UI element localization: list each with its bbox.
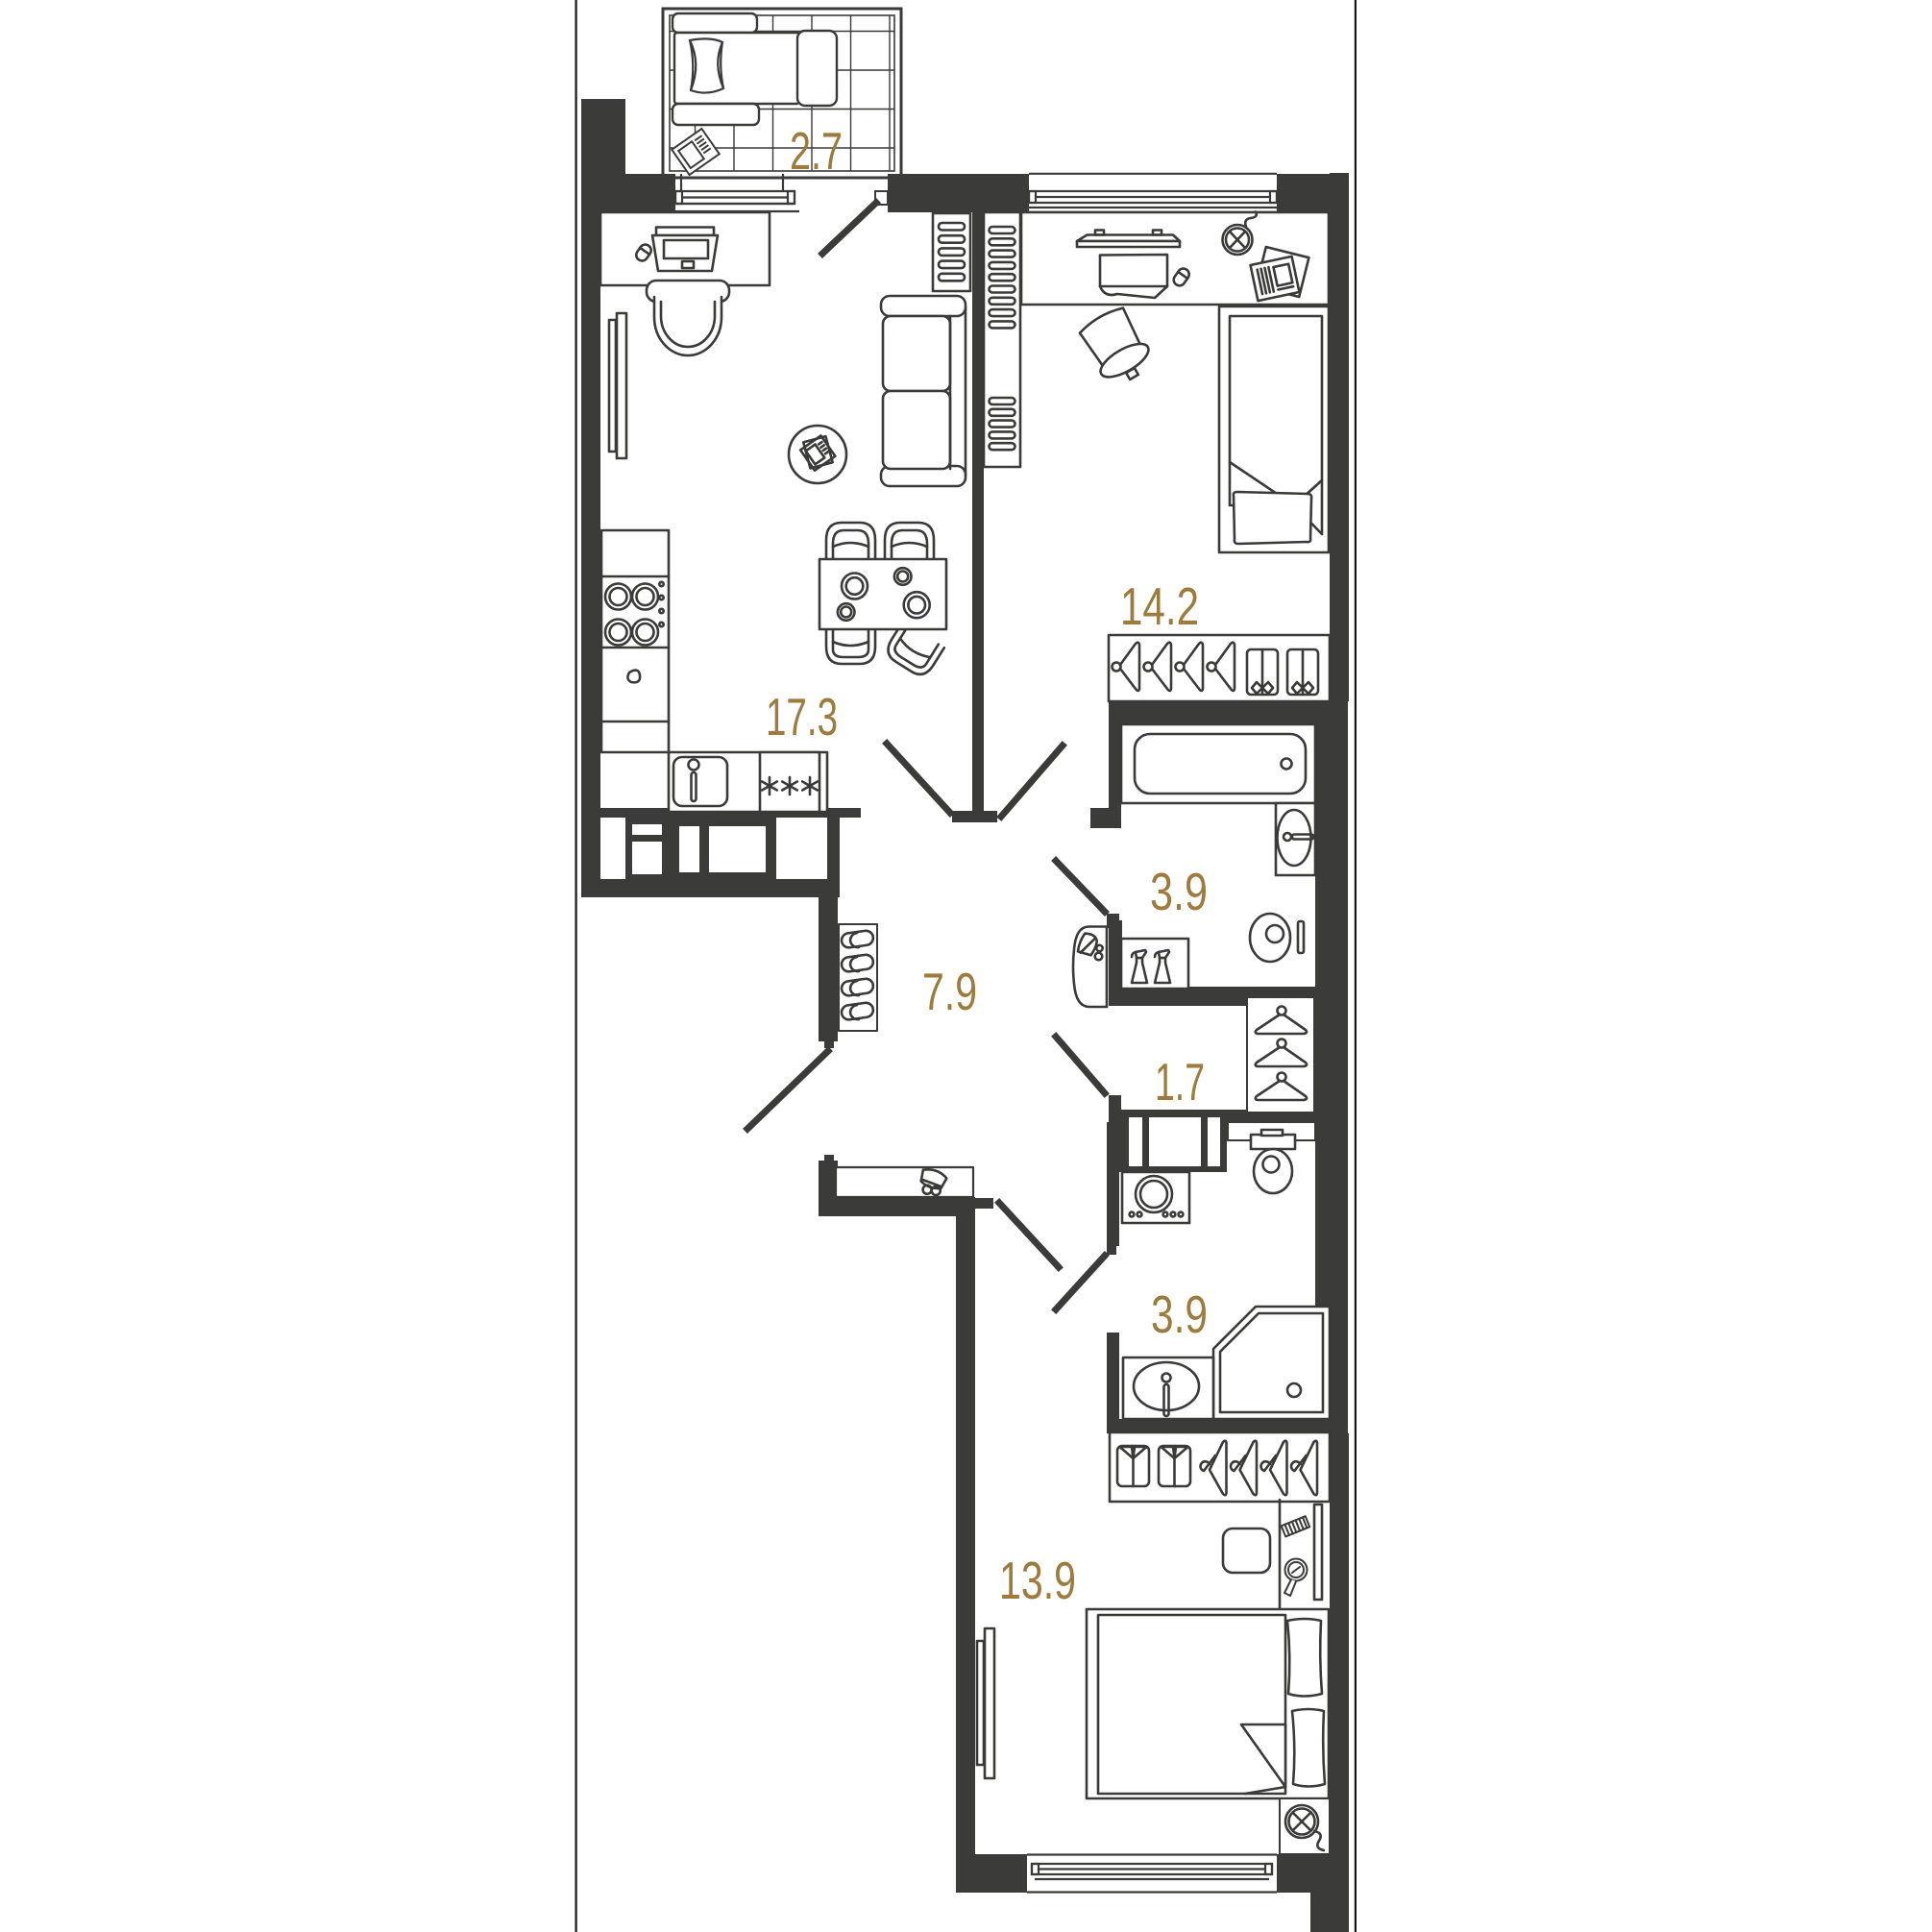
svg-text:17.3: 17.3 — [766, 687, 838, 746]
svg-text:1.7: 1.7 — [1155, 1052, 1205, 1112]
svg-text:3.9: 3.9 — [1150, 862, 1208, 921]
svg-text:14.2: 14.2 — [1120, 576, 1199, 636]
svg-text:7.9: 7.9 — [922, 962, 977, 1021]
svg-text:13.9: 13.9 — [999, 1551, 1076, 1610]
svg-text:2.7: 2.7 — [790, 121, 843, 181]
svg-text:3.9: 3.9 — [1151, 1284, 1208, 1344]
